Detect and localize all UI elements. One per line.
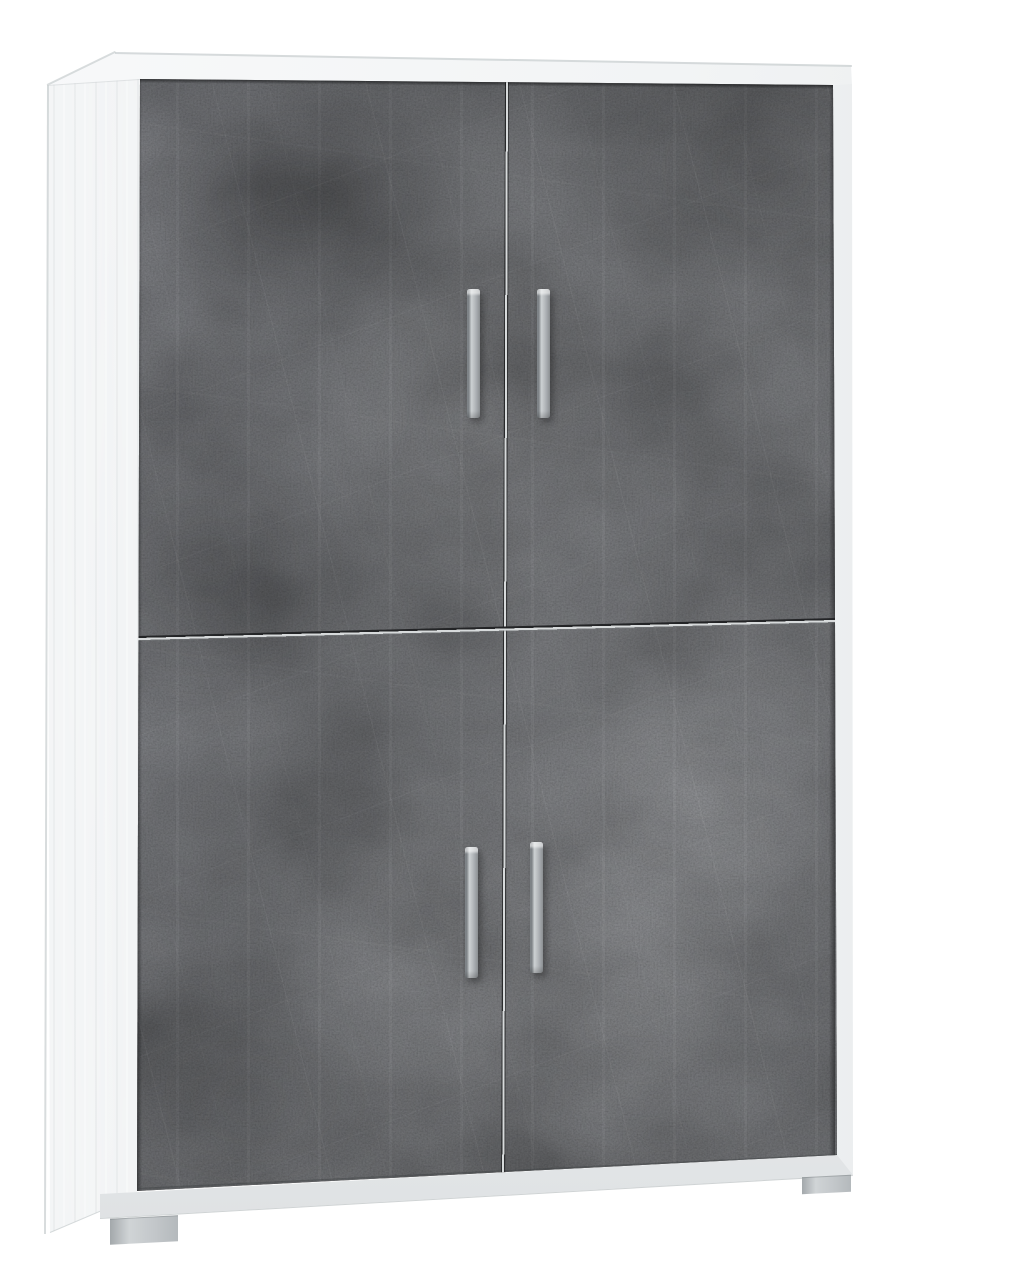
handle-bottom-right [530, 842, 543, 973]
handle-bottom-left [465, 847, 478, 978]
foot-right [802, 1175, 851, 1195]
foot-left [110, 1215, 178, 1245]
side-left-edge [44, 85, 49, 1234]
handle-top-left [467, 289, 480, 418]
handle-top-right [537, 289, 550, 418]
middle-door-gap [137, 618, 837, 641]
product-photo-scene [0, 0, 1024, 1276]
door-edge-shadows [0, 0, 1024, 1276]
